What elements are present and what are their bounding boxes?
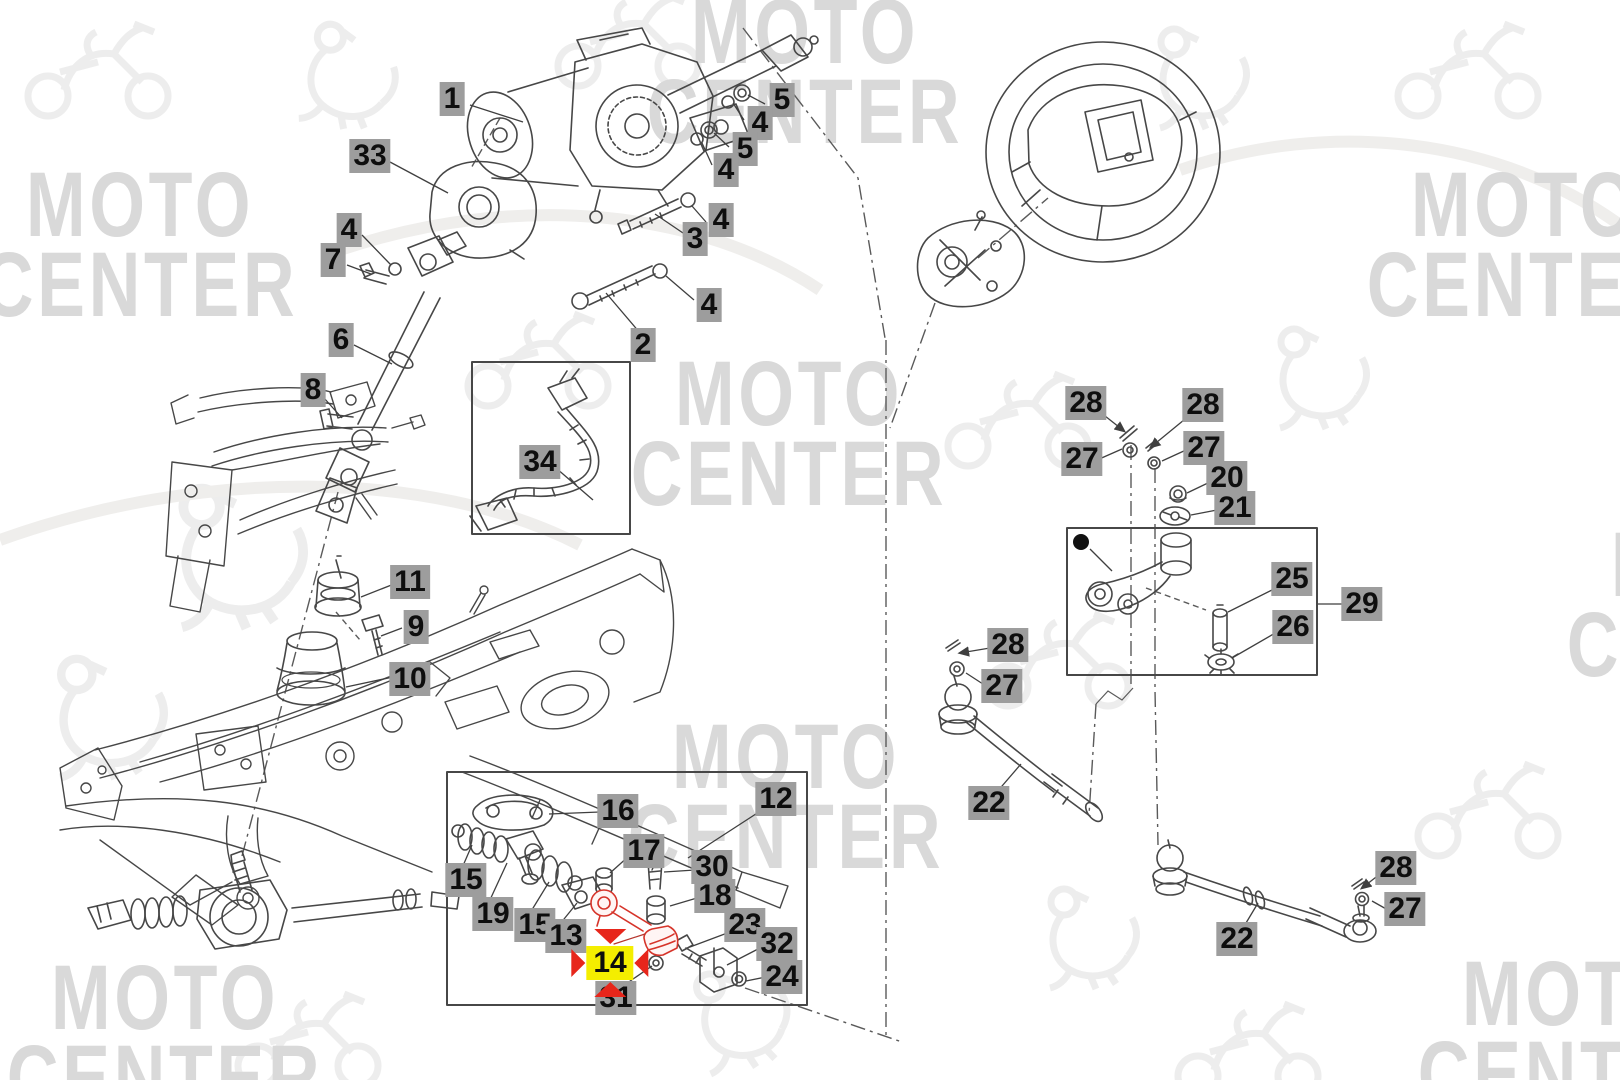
part-label-11: 11 bbox=[390, 565, 430, 599]
highlight-arrow-r bbox=[635, 949, 649, 977]
part-label-27: 27 bbox=[1061, 442, 1102, 476]
part-label-5: 5 bbox=[770, 83, 795, 117]
part-label-13: 13 bbox=[545, 919, 586, 953]
part-label-6: 6 bbox=[329, 323, 354, 357]
part-label-32: 32 bbox=[756, 927, 797, 961]
part-label-4: 4 bbox=[709, 203, 734, 237]
part-label-17: 17 bbox=[623, 834, 664, 868]
part-label-20: 20 bbox=[1206, 461, 1247, 495]
part-label-33: 33 bbox=[349, 139, 390, 173]
part-label-29: 29 bbox=[1341, 587, 1382, 621]
part-label-9: 9 bbox=[404, 610, 429, 644]
labels-layer: 1335454434247683411910282827272021252629… bbox=[0, 0, 1620, 1080]
part-label-4: 4 bbox=[697, 288, 722, 322]
part-label-24: 24 bbox=[761, 960, 802, 994]
part-label-3: 3 bbox=[683, 222, 708, 256]
highlight-arrow-l bbox=[571, 949, 585, 977]
part-label-28: 28 bbox=[1182, 388, 1223, 422]
part-label-26: 26 bbox=[1272, 610, 1313, 644]
highlight-arrow-b bbox=[594, 982, 626, 997]
part-label-8: 8 bbox=[301, 373, 326, 407]
highlighted-part-label-14: 14 bbox=[586, 946, 633, 980]
part-label-22: 22 bbox=[968, 786, 1009, 820]
parts-diagram-page: MOTOCENTERMOTOCENTERMOTOCENTERMOTOCENTER… bbox=[0, 0, 1620, 1080]
highlight-arrow-t bbox=[594, 929, 626, 944]
part-label-2: 2 bbox=[631, 328, 656, 362]
part-label-28: 28 bbox=[1375, 851, 1416, 885]
part-label-34: 34 bbox=[519, 445, 560, 479]
part-label-15: 15 bbox=[445, 863, 486, 897]
part-label-27: 27 bbox=[1384, 892, 1425, 926]
part-label-12: 12 bbox=[755, 782, 796, 816]
part-label-4: 4 bbox=[714, 153, 739, 187]
part-label-27: 27 bbox=[981, 669, 1022, 703]
part-label-1: 1 bbox=[440, 82, 465, 116]
part-label-19: 19 bbox=[472, 897, 513, 931]
part-label-27: 27 bbox=[1183, 431, 1224, 465]
part-label-22: 22 bbox=[1216, 922, 1257, 956]
part-label-10: 10 bbox=[389, 662, 430, 696]
part-label-4: 4 bbox=[337, 213, 362, 247]
part-label-21: 21 bbox=[1214, 491, 1255, 525]
part-label-16: 16 bbox=[597, 794, 638, 828]
part-label-7: 7 bbox=[321, 243, 346, 277]
part-label-28: 28 bbox=[1065, 386, 1106, 420]
part-label-25: 25 bbox=[1271, 562, 1312, 596]
part-label-28: 28 bbox=[987, 628, 1028, 662]
